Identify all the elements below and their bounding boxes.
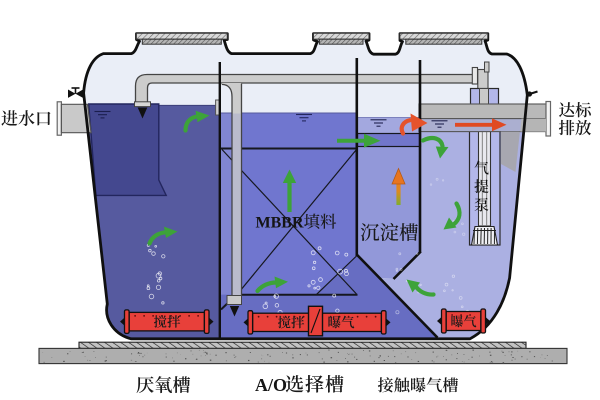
svg-text:MBBR: MBBR: [256, 215, 304, 232]
svg-text:A/O: A/O: [255, 375, 287, 395]
